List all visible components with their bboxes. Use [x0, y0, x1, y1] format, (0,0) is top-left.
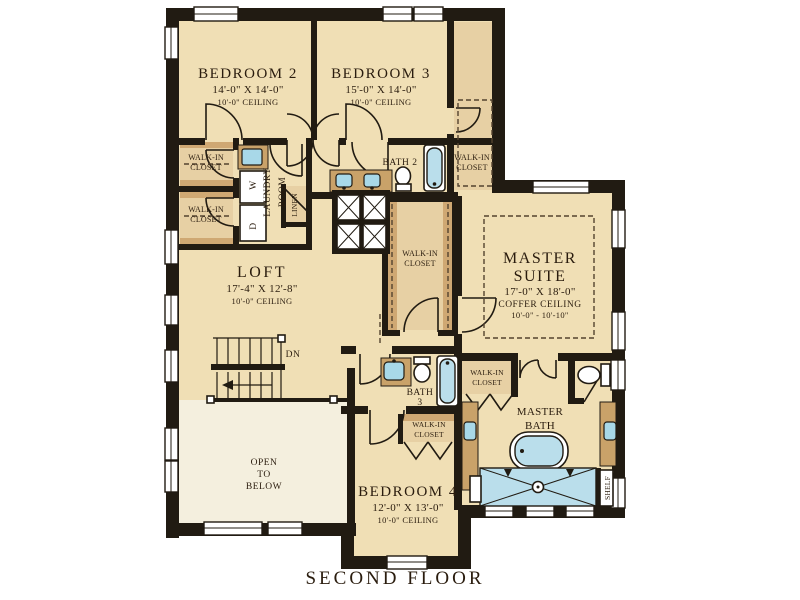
window — [165, 27, 178, 59]
washer-label: W — [249, 180, 259, 189]
wic-master-line1: WALK-IN — [470, 368, 504, 377]
wic-tl1-line2: CLOSET — [190, 163, 221, 172]
newel-post — [207, 396, 214, 403]
wall-master-bottom-a — [454, 353, 518, 361]
window — [165, 428, 178, 460]
wic-master-line2: CLOSET — [472, 378, 502, 387]
bath3-faucet — [392, 359, 396, 363]
window — [526, 505, 554, 517]
wall-wic-divider — [172, 186, 235, 192]
window — [165, 295, 178, 325]
cabinet-cell — [363, 224, 386, 249]
cabinet-cell — [363, 195, 386, 220]
bath3-sink — [384, 362, 404, 380]
bedroom3-ceiling: 10'-0" CEILING — [351, 97, 412, 107]
wall-cwic-bottom-a — [382, 330, 400, 336]
window — [566, 505, 594, 517]
master-suite-dims: 17'-0" X 18'-0" — [504, 286, 575, 298]
loft-name: LOFT — [237, 264, 287, 281]
loft-ceiling: 10'-0" CEILING — [232, 296, 293, 306]
wic1-shelf-bottom — [180, 180, 233, 186]
master-bath-name1: MASTER — [517, 406, 564, 418]
master-suite-ceiling-type: COFFER CEILING — [498, 300, 581, 310]
mbath-sink-right — [604, 422, 616, 440]
wall-loft-top — [172, 244, 312, 250]
shelf-label: SHELF — [603, 476, 612, 500]
wall-bedrooms-bottom-c — [339, 138, 346, 145]
wall-bed2-bed3 — [311, 18, 317, 140]
wall-toiletroom-bottom — [568, 398, 584, 404]
bath3-name1: BATH — [407, 388, 434, 398]
open-below-line3: BELOW — [246, 482, 282, 492]
open-below-line2: TO — [257, 470, 271, 480]
wall-cwic-top — [382, 196, 458, 202]
wic2-shelf-top — [180, 192, 233, 198]
wic2-shelf-bottom — [180, 238, 233, 244]
bath3-tub — [437, 356, 458, 406]
window — [383, 7, 412, 21]
wall-tower-left-b — [447, 134, 454, 192]
cabinet-cell — [337, 195, 360, 220]
bedroom2-dims: 14'-0" X 14'-0" — [212, 84, 283, 96]
wall-tower-left-a — [447, 18, 454, 108]
window — [611, 360, 625, 390]
mbath-sink-left — [464, 422, 476, 440]
window — [165, 230, 178, 264]
plan-title: SECOND FLOOR — [305, 568, 484, 589]
bedroom3-dims: 15'-0" X 14'-0" — [345, 84, 416, 96]
bath2-faucet-2 — [370, 186, 374, 190]
dryer-label: D — [249, 222, 259, 229]
wall-bedrooms-bottom-b — [243, 138, 287, 145]
wall-wic-tower-right — [492, 8, 505, 193]
loft-dims: 17'-4" X 12'-8" — [226, 283, 297, 295]
bedroom2-name: BEDROOM 2 — [198, 66, 298, 82]
wic-tl1-line1: WALK-IN — [188, 153, 224, 162]
wic-tl2-line2: CLOSET — [190, 215, 221, 224]
bath2-sink-2 — [364, 174, 380, 187]
wic-tr-line1: WALK-IN — [454, 153, 490, 162]
window — [612, 210, 625, 248]
bedroom2-ceiling: 10'-0" CEILING — [218, 97, 279, 107]
floor-plan-page: BEDROOM 2 14'-0" X 14'-0" 10'-0" CEILING… — [0, 0, 800, 600]
window — [194, 7, 238, 21]
dn-label: DN — [286, 350, 301, 360]
laundry-sink — [242, 149, 262, 165]
wic-center-line1: WALK-IN — [402, 249, 438, 258]
master-suite-ceiling-height: 10'-0" - 10'-10" — [511, 310, 568, 320]
master-tub — [510, 432, 568, 470]
open-below-line1: OPEN — [251, 458, 278, 468]
window — [612, 312, 625, 350]
bath3-name2: 3 — [417, 398, 422, 408]
master-toilet — [578, 364, 610, 386]
window — [485, 505, 513, 517]
bath3-toilet — [414, 357, 430, 382]
wall-toiletroom-left — [568, 353, 575, 403]
wall-bedrooms-bottom-d — [388, 138, 502, 145]
hall-linen-cabinet — [332, 190, 390, 254]
wall-master-left-a — [454, 196, 462, 296]
window — [533, 181, 589, 193]
bedroom3-name: BEDROOM 3 — [331, 66, 431, 82]
bath2-sink-1 — [336, 174, 352, 187]
cabinet-cell — [337, 224, 360, 249]
wic-bed4-line2: CLOSET — [414, 430, 444, 439]
wic-tl2-line1: WALK-IN — [188, 205, 224, 214]
wall-mwic-right — [511, 353, 518, 397]
bedroom4-ceiling: 10'-0" CEILING — [378, 515, 439, 525]
laundry-label-line1: LAUNDRY — [263, 167, 273, 216]
wall-bath3-bottom-b — [406, 406, 462, 414]
window — [414, 7, 443, 21]
bath2-label: BATH 2 — [383, 158, 418, 168]
wic-bed4-line1: WALK-IN — [412, 420, 446, 429]
window — [165, 461, 178, 492]
newel-post — [278, 335, 285, 342]
wall-bedrooms-bottom-a — [172, 138, 205, 145]
master-suite-name1: MASTER — [503, 250, 577, 267]
wall-bath3-top-b — [392, 346, 462, 354]
wall-master-bottom-b — [558, 353, 618, 361]
wall-bed4-left — [347, 368, 355, 526]
bedroom4-dims: 12'-0" X 13'-0" — [372, 502, 443, 514]
wic-tr-line2: CLOSET — [456, 163, 487, 172]
bath2-toilet — [396, 167, 412, 191]
master-shower — [470, 468, 596, 506]
newel-post — [330, 396, 337, 403]
window — [268, 522, 302, 535]
bedroom4-name: BEDROOM 4 — [358, 484, 458, 500]
wic-center-line2: CLOSET — [404, 259, 435, 268]
bath2-tub — [424, 145, 445, 191]
bath2-faucet-1 — [342, 186, 346, 190]
master-bath-name2: BATH — [525, 420, 555, 432]
linen-label: LINEN — [290, 193, 299, 217]
window — [165, 350, 178, 382]
laundry-label-line2: ROOM — [278, 177, 288, 208]
window — [204, 522, 262, 535]
master-suite-name2: SUITE — [514, 268, 567, 285]
wall-bath3-top-a — [341, 346, 356, 354]
shower-bench — [470, 476, 481, 502]
wall-linen-bottom — [281, 222, 311, 227]
stair-rail — [211, 364, 285, 370]
floor-plan-drawing: BEDROOM 2 14'-0" X 14'-0" 10'-0" CEILING… — [0, 0, 800, 600]
